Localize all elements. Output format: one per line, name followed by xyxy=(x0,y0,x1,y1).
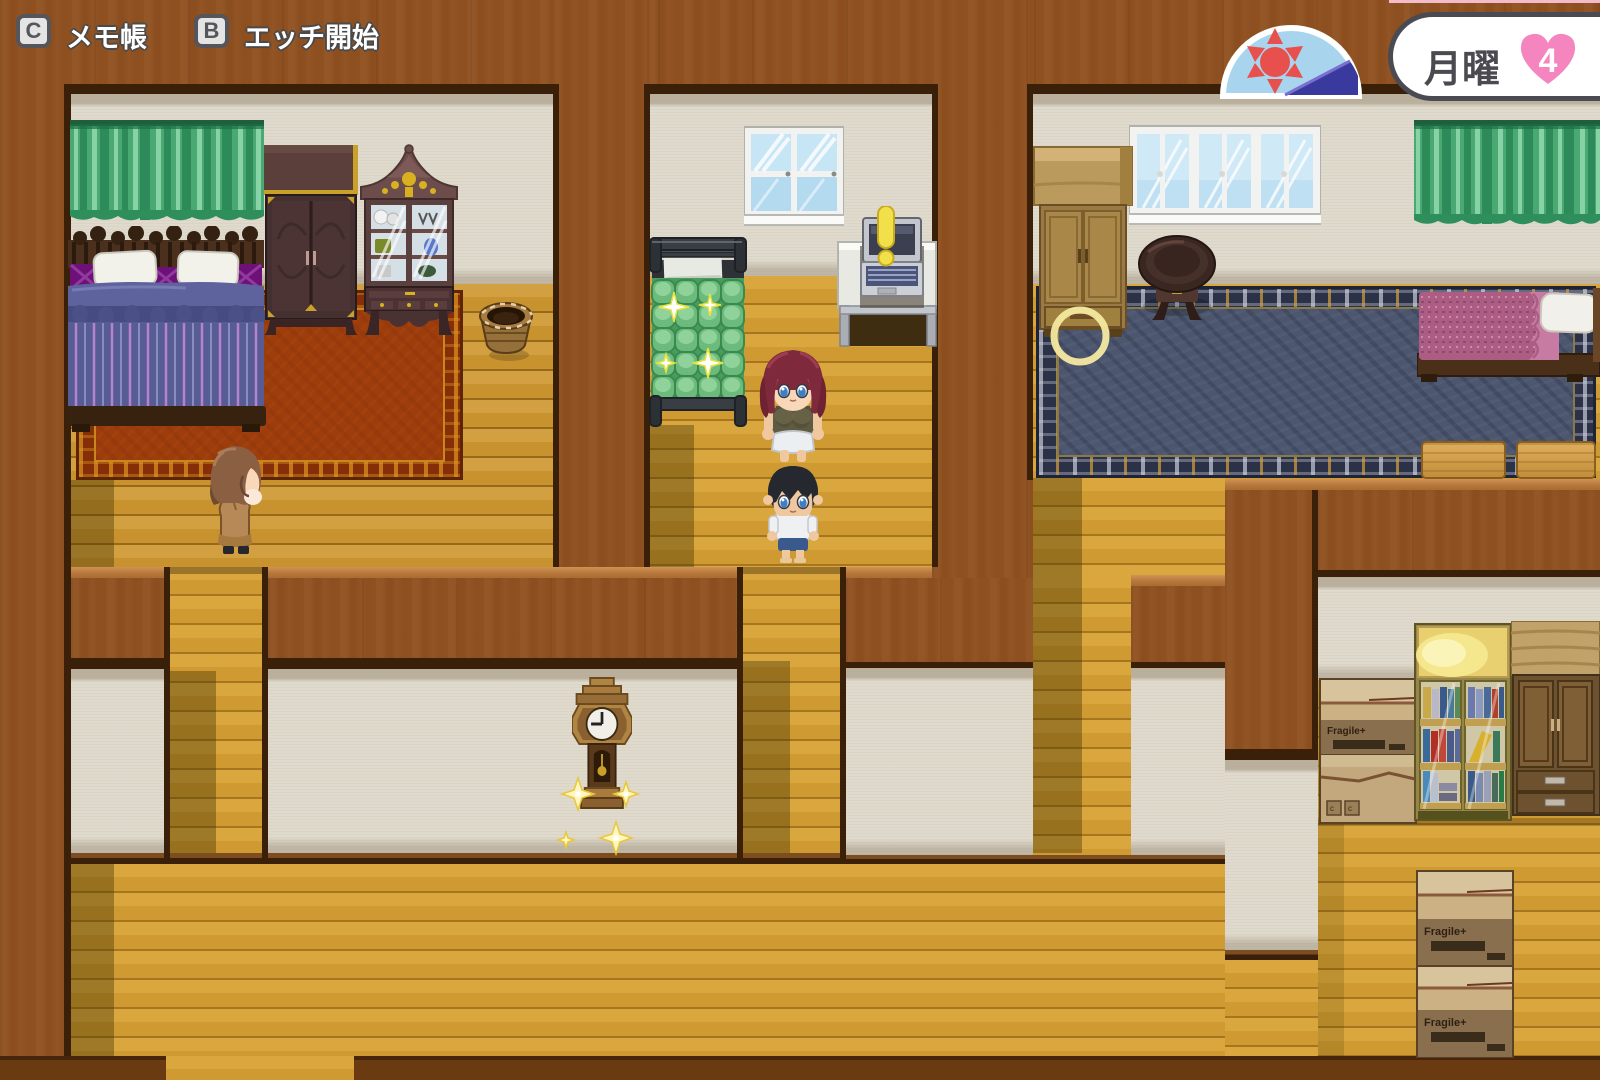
svg-text:Fragile+: Fragile+ xyxy=(1327,726,1366,737)
svg-text:Fragile+: Fragile+ xyxy=(1424,926,1467,938)
svg-text:c: c xyxy=(1348,804,1352,813)
svg-text:4: 4 xyxy=(1539,42,1558,80)
svg-text:c: c xyxy=(1330,804,1334,813)
svg-text:Fragile+: Fragile+ xyxy=(1424,1017,1467,1029)
